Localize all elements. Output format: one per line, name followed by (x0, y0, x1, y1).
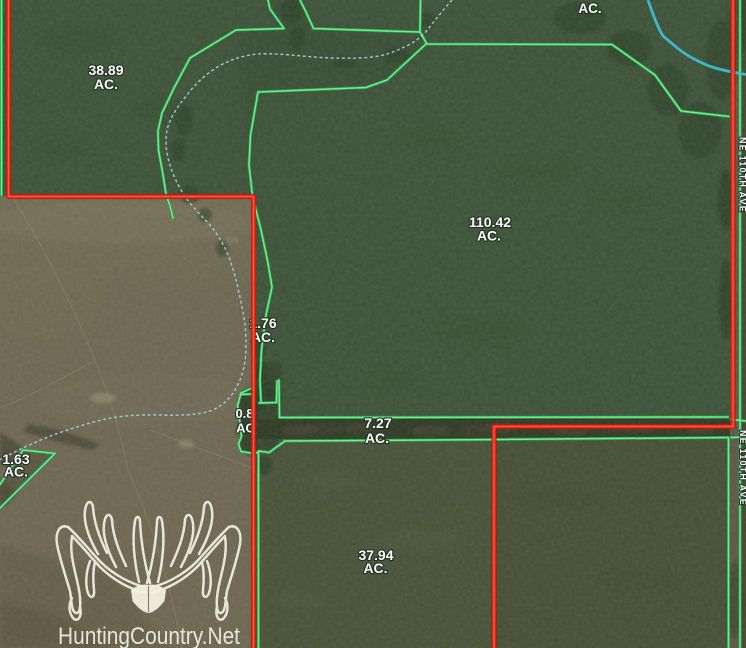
svg-text:NE 110TH AVE: NE 110TH AVE (738, 430, 746, 506)
svg-text:AC.: AC. (94, 76, 118, 92)
svg-text:AC.: AC. (365, 430, 389, 446)
svg-text:HuntingCountry.Net: HuntingCountry.Net (58, 623, 240, 648)
svg-text:AC.: AC. (363, 560, 387, 576)
svg-text:AC.: AC. (477, 228, 501, 244)
svg-text:7.27: 7.27 (364, 415, 391, 431)
svg-text:NE 110TH AVE: NE 110TH AVE (738, 137, 746, 213)
svg-text:AC.: AC. (4, 464, 28, 480)
svg-text:AC.: AC. (578, 1, 601, 16)
svg-text:0.8: 0.8 (235, 406, 253, 421)
